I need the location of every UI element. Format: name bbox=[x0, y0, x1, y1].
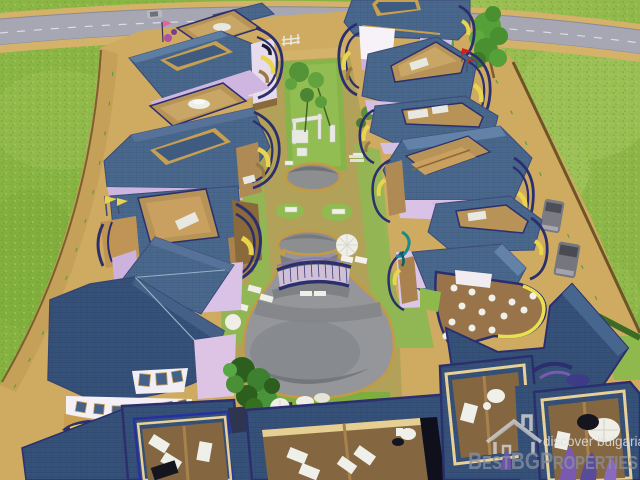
svg-text:discover bulgaria: discover bulgaria bbox=[543, 434, 640, 449]
svg-text:BESTBGPROPERTIES: BESTBGPROPERTIES bbox=[468, 448, 638, 475]
